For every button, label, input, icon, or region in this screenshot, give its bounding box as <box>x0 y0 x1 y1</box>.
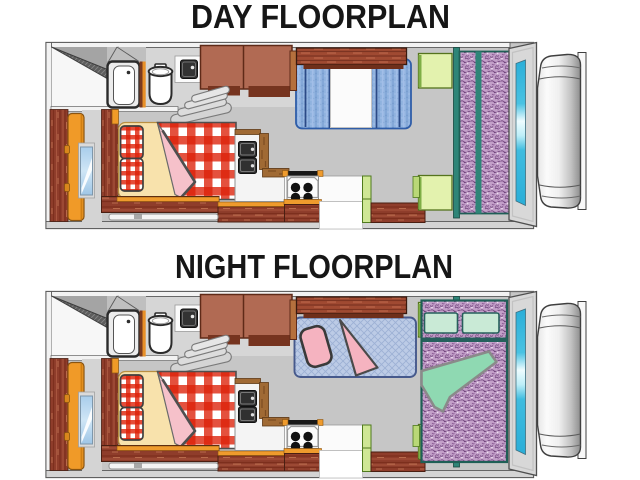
svg-text:DAY FLOORPLAN: DAY FLOORPLAN <box>191 0 450 35</box>
svg-text:NIGHT FLOORPLAN: NIGHT FLOORPLAN <box>175 248 453 285</box>
